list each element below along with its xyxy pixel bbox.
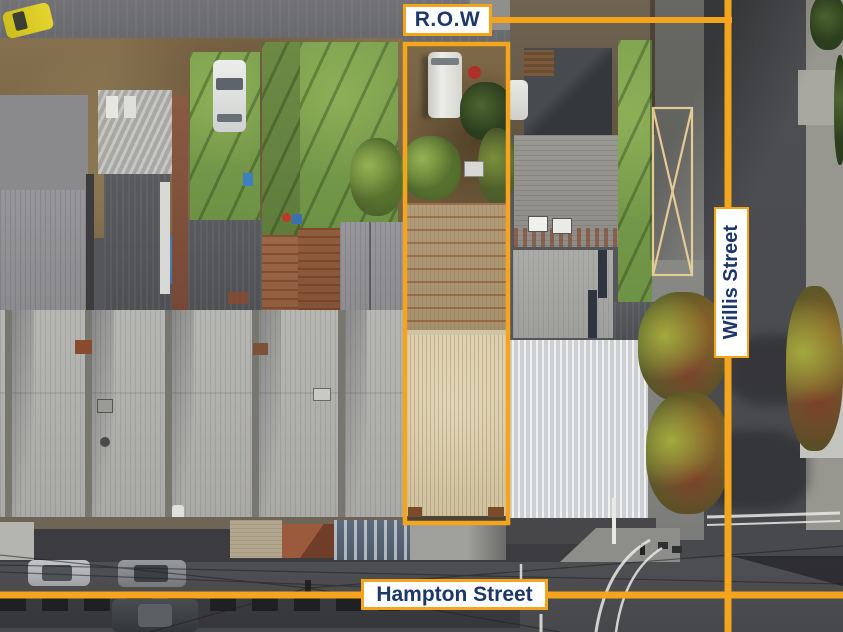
hampton-street-label: Hampton Street xyxy=(361,579,548,610)
row-label-text: R.O.W xyxy=(415,8,481,32)
row-label: R.O.W xyxy=(403,4,492,36)
crossover-hatch xyxy=(653,108,692,275)
property-boundary xyxy=(405,44,508,523)
willis-street-label-text: Willis Street xyxy=(720,225,743,339)
hampton-street-label-text: Hampton Street xyxy=(376,583,532,607)
aerial-photo: R.O.W Willis Street Hampton Street xyxy=(0,0,843,632)
willis-street-label: Willis Street xyxy=(714,207,749,358)
